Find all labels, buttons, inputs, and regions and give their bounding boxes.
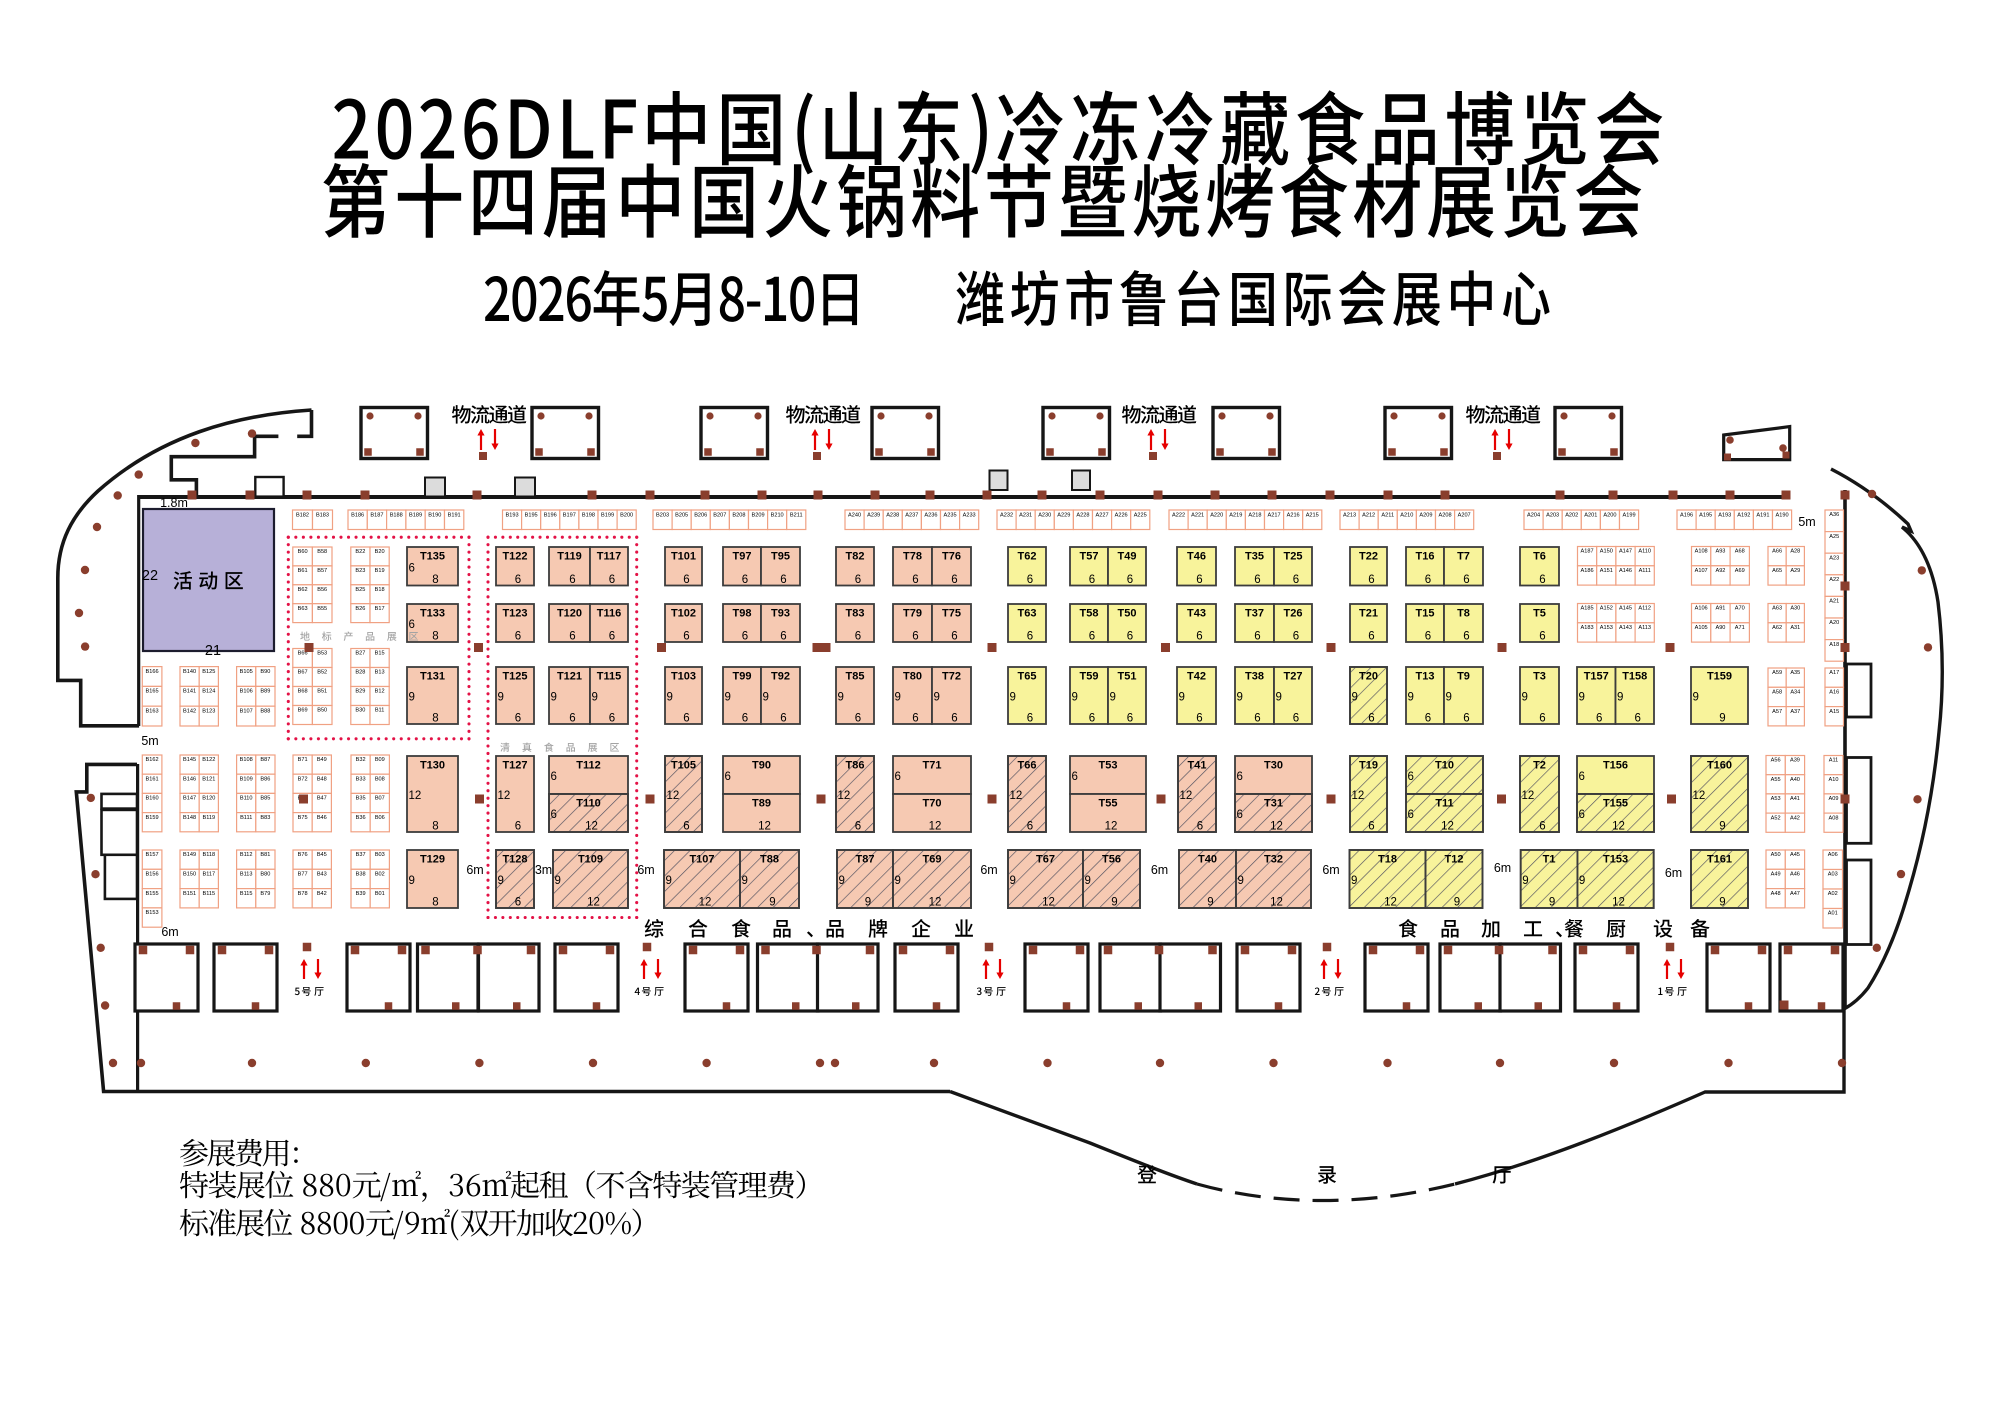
svg-text:3m: 3m: [535, 863, 552, 877]
svg-text:A216: A216: [1287, 512, 1300, 518]
svg-text:B186: B186: [351, 512, 364, 518]
svg-text:T15: T15: [1416, 608, 1435, 620]
svg-text:T123: T123: [502, 608, 527, 620]
svg-text:T122: T122: [502, 551, 527, 563]
svg-text:T43: T43: [1187, 608, 1206, 620]
svg-text:A15: A15: [1829, 709, 1839, 715]
svg-text:22: 22: [142, 568, 158, 584]
svg-text:T11: T11: [1435, 798, 1453, 810]
svg-text:B199: B199: [601, 512, 614, 518]
svg-text:T7: T7: [1457, 551, 1470, 563]
svg-text:A46: A46: [1790, 872, 1800, 878]
svg-text:T121: T121: [557, 671, 582, 683]
svg-text:B153: B153: [146, 910, 159, 916]
svg-text:A183: A183: [1581, 625, 1594, 631]
svg-text:9: 9: [1352, 692, 1358, 704]
svg-text:A237: A237: [905, 512, 918, 518]
svg-text:T3: T3: [1533, 671, 1546, 683]
svg-text:9: 9: [1207, 897, 1213, 909]
svg-text:12: 12: [1352, 790, 1365, 802]
svg-text:A152: A152: [1600, 606, 1613, 612]
svg-text:T12: T12: [1445, 854, 1464, 866]
svg-text:A231: A231: [1019, 512, 1032, 518]
svg-text:T92: T92: [771, 671, 790, 683]
svg-text:B117: B117: [202, 872, 215, 878]
svg-text:B115: B115: [202, 891, 215, 897]
svg-text:B23: B23: [355, 568, 365, 574]
svg-text:A93: A93: [1715, 549, 1725, 555]
svg-text:T67: T67: [1036, 854, 1055, 866]
svg-text:8: 8: [432, 897, 438, 909]
svg-text:9: 9: [551, 692, 557, 704]
svg-text:9: 9: [1549, 897, 1555, 909]
svg-text:B38: B38: [356, 872, 366, 878]
svg-text:B60: B60: [298, 549, 308, 555]
svg-text:A211: A211: [1381, 512, 1394, 518]
svg-text:A29: A29: [1790, 568, 1800, 574]
svg-text:6: 6: [725, 771, 731, 783]
svg-text:B61: B61: [298, 568, 308, 574]
svg-text:A187: A187: [1581, 549, 1594, 555]
svg-text:A105: A105: [1695, 625, 1708, 631]
svg-text:B112: B112: [240, 852, 253, 858]
svg-text:A192: A192: [1737, 512, 1750, 518]
svg-text:A02: A02: [1828, 891, 1838, 897]
svg-text:T83: T83: [846, 608, 865, 620]
svg-text:B191: B191: [448, 512, 461, 518]
svg-text:6: 6: [515, 713, 521, 725]
svg-text:T20: T20: [1359, 671, 1378, 683]
svg-text:T130: T130: [420, 760, 445, 772]
svg-text:B187: B187: [370, 512, 383, 518]
svg-text:6: 6: [515, 631, 521, 643]
svg-text:6: 6: [1237, 771, 1243, 783]
svg-text:6: 6: [1425, 713, 1431, 725]
svg-text:T88: T88: [760, 854, 779, 866]
svg-text:B47: B47: [317, 796, 327, 802]
svg-text:12: 12: [585, 821, 598, 833]
svg-text:6: 6: [1539, 713, 1545, 725]
svg-text:9: 9: [1237, 692, 1243, 704]
svg-text:B67: B67: [298, 670, 308, 676]
svg-text:A57: A57: [1772, 709, 1782, 715]
svg-text:12: 12: [667, 790, 680, 802]
svg-text:A236: A236: [924, 512, 937, 518]
svg-text:6: 6: [742, 574, 748, 586]
svg-text:12: 12: [587, 897, 600, 909]
svg-text:9: 9: [409, 692, 415, 704]
svg-text:A70: A70: [1735, 606, 1745, 612]
svg-text:9: 9: [742, 875, 748, 887]
svg-text:6m: 6m: [637, 863, 654, 877]
svg-text:T82: T82: [846, 551, 865, 563]
svg-text:6: 6: [409, 619, 415, 631]
svg-text:T35: T35: [1245, 551, 1264, 563]
svg-text:A222: A222: [1172, 512, 1185, 518]
svg-text:B26: B26: [355, 606, 365, 612]
svg-text:B28: B28: [355, 670, 365, 676]
svg-text:T99: T99: [733, 671, 752, 683]
svg-text:T51: T51: [1118, 671, 1137, 683]
svg-text:12: 12: [1522, 790, 1535, 802]
svg-text:A39: A39: [1790, 758, 1800, 764]
svg-text:6: 6: [912, 631, 918, 643]
svg-text:6: 6: [1539, 821, 1545, 833]
svg-text:B142: B142: [183, 708, 196, 714]
svg-text:12: 12: [1612, 897, 1625, 909]
svg-text:T135: T135: [420, 551, 445, 563]
svg-text:9: 9: [934, 692, 940, 704]
svg-text:B115: B115: [240, 891, 253, 897]
svg-text:T6: T6: [1533, 551, 1546, 563]
svg-text:B122: B122: [202, 757, 215, 763]
svg-text:9: 9: [667, 692, 673, 704]
svg-text:B85: B85: [260, 796, 270, 802]
svg-text:T65: T65: [1018, 671, 1037, 683]
svg-text:A146: A146: [1619, 568, 1632, 574]
svg-text:9: 9: [666, 875, 672, 887]
svg-text:B106: B106: [240, 689, 253, 695]
svg-text:T157: T157: [1584, 671, 1609, 683]
svg-text:B90: B90: [260, 669, 270, 675]
svg-text:B145: B145: [183, 757, 196, 763]
svg-text:T31: T31: [1264, 798, 1283, 810]
svg-text:21: 21: [205, 643, 221, 659]
svg-text:B79: B79: [260, 891, 270, 897]
svg-text:B01: B01: [375, 891, 385, 897]
svg-text:B09: B09: [375, 757, 385, 763]
svg-text:T62: T62: [1018, 551, 1037, 563]
svg-text:6: 6: [742, 631, 748, 643]
svg-text:9: 9: [555, 875, 561, 887]
svg-text:B121: B121: [202, 776, 215, 782]
svg-text:T90: T90: [752, 760, 771, 772]
svg-text:B193: B193: [506, 512, 519, 518]
svg-text:12: 12: [699, 897, 712, 909]
svg-text:B209: B209: [752, 512, 765, 518]
svg-text:A217: A217: [1268, 512, 1281, 518]
svg-text:A186: A186: [1581, 568, 1594, 574]
svg-text:6: 6: [683, 713, 689, 725]
svg-text:B160: B160: [146, 796, 159, 802]
svg-text:6: 6: [1089, 631, 1095, 643]
svg-text:T112: T112: [576, 760, 600, 772]
svg-text:9: 9: [1446, 692, 1452, 704]
svg-text:6: 6: [1254, 574, 1260, 586]
svg-text:B71: B71: [298, 757, 308, 763]
svg-text:T79: T79: [903, 608, 922, 620]
svg-text:6: 6: [551, 809, 557, 821]
svg-text:T71: T71: [923, 760, 942, 772]
svg-text:6: 6: [1463, 631, 1469, 643]
svg-text:A41: A41: [1790, 796, 1800, 802]
svg-text:B203: B203: [656, 512, 669, 518]
svg-text:6: 6: [1254, 631, 1260, 643]
svg-text:B86: B86: [260, 776, 270, 782]
svg-text:12: 12: [1612, 821, 1625, 833]
svg-text:B56: B56: [317, 587, 327, 593]
svg-text:A220: A220: [1210, 512, 1223, 518]
svg-text:B151: B151: [183, 891, 196, 897]
svg-text:5m: 5m: [141, 734, 158, 748]
svg-text:9: 9: [1111, 897, 1117, 909]
svg-text:6: 6: [609, 631, 615, 643]
svg-text:T120: T120: [557, 608, 582, 620]
svg-text:T18: T18: [1378, 854, 1397, 866]
svg-text:T105: T105: [671, 760, 696, 772]
svg-text:9: 9: [1010, 875, 1016, 887]
svg-text:A219: A219: [1229, 512, 1242, 518]
svg-text:A238: A238: [886, 512, 899, 518]
svg-text:T85: T85: [846, 671, 865, 683]
svg-text:T161: T161: [1707, 854, 1732, 866]
svg-text:A66: A66: [1772, 549, 1782, 555]
svg-text:T63: T63: [1018, 608, 1037, 620]
svg-text:12: 12: [1270, 897, 1283, 909]
svg-text:A213: A213: [1343, 512, 1356, 518]
svg-text:B69: B69: [298, 708, 308, 714]
svg-text:B37: B37: [356, 852, 366, 858]
svg-text:6: 6: [1027, 821, 1033, 833]
svg-text:A50: A50: [1771, 852, 1781, 858]
svg-text:B159: B159: [146, 815, 159, 821]
svg-text:T38: T38: [1245, 671, 1264, 683]
svg-text:9: 9: [409, 875, 415, 887]
svg-text:A45: A45: [1790, 852, 1800, 858]
svg-text:T107: T107: [689, 854, 714, 866]
svg-text:T46: T46: [1187, 551, 1206, 563]
svg-text:T1: T1: [1543, 854, 1556, 866]
svg-text:B87: B87: [260, 757, 270, 763]
svg-text:6: 6: [1368, 713, 1374, 725]
svg-text:A23: A23: [1829, 555, 1839, 561]
svg-text:6: 6: [1579, 809, 1585, 821]
svg-text:A58: A58: [1772, 690, 1782, 696]
svg-text:T40: T40: [1198, 854, 1217, 866]
svg-text:T119: T119: [557, 551, 581, 563]
svg-text:9: 9: [1693, 692, 1699, 704]
svg-text:B80: B80: [260, 872, 270, 878]
svg-text:B108: B108: [240, 757, 253, 763]
svg-text:B198: B198: [582, 512, 595, 518]
svg-text:A49: A49: [1771, 872, 1781, 878]
svg-text:T95: T95: [771, 551, 790, 563]
svg-text:B42: B42: [317, 891, 327, 897]
svg-text:9: 9: [1351, 875, 1357, 887]
svg-text:12: 12: [1441, 821, 1454, 833]
svg-text:A212: A212: [1362, 512, 1375, 518]
svg-text:A227: A227: [1096, 512, 1109, 518]
svg-text:B53: B53: [317, 651, 327, 657]
svg-text:T80: T80: [903, 671, 922, 683]
svg-text:6: 6: [1539, 631, 1545, 643]
svg-text:9: 9: [838, 692, 844, 704]
svg-text:12: 12: [1010, 790, 1023, 802]
svg-text:B76: B76: [298, 852, 308, 858]
svg-text:A06: A06: [1828, 852, 1838, 858]
svg-text:T70: T70: [923, 798, 942, 810]
svg-text:B49: B49: [317, 757, 327, 763]
svg-text:A232: A232: [1000, 512, 1013, 518]
svg-text:T89: T89: [752, 798, 771, 810]
svg-text:T131: T131: [420, 671, 445, 683]
svg-text:B206: B206: [694, 512, 707, 518]
svg-text:T127: T127: [502, 760, 527, 772]
svg-text:6: 6: [780, 574, 786, 586]
svg-text:T22: T22: [1359, 551, 1378, 563]
svg-text:6: 6: [569, 574, 575, 586]
svg-text:B200: B200: [620, 512, 633, 518]
svg-text:B110: B110: [240, 796, 253, 802]
svg-text:T102: T102: [671, 608, 696, 620]
svg-text:B155: B155: [146, 891, 159, 897]
svg-text:9: 9: [839, 875, 845, 887]
svg-text:A221: A221: [1191, 512, 1204, 518]
svg-text:A145: A145: [1619, 606, 1632, 612]
svg-text:6: 6: [855, 574, 861, 586]
svg-text:A203: A203: [1546, 512, 1559, 518]
svg-text:A190: A190: [1776, 512, 1789, 518]
svg-text:A150: A150: [1600, 549, 1613, 555]
svg-text:9: 9: [1719, 821, 1725, 833]
svg-text:6: 6: [551, 771, 557, 783]
svg-text:A202: A202: [1565, 512, 1578, 518]
svg-text:12: 12: [1105, 821, 1118, 833]
svg-text:B88: B88: [260, 708, 270, 714]
svg-text:9: 9: [865, 897, 871, 909]
svg-text:T55: T55: [1099, 798, 1118, 810]
svg-text:B29: B29: [355, 689, 365, 695]
svg-text:B210: B210: [771, 512, 784, 518]
svg-text:A91: A91: [1715, 606, 1725, 612]
svg-text:T76: T76: [942, 551, 961, 563]
svg-text:A229: A229: [1057, 512, 1070, 518]
svg-text:6: 6: [1368, 631, 1374, 643]
svg-text:T10: T10: [1435, 760, 1454, 772]
svg-text:A215: A215: [1306, 512, 1319, 518]
svg-text:B32: B32: [356, 757, 366, 763]
svg-text:B06: B06: [375, 815, 385, 821]
svg-text:T115: T115: [597, 671, 621, 683]
svg-text:A225: A225: [1134, 512, 1147, 518]
svg-text:A10: A10: [1829, 777, 1839, 783]
svg-text:B48: B48: [317, 776, 327, 782]
svg-text:A56: A56: [1771, 758, 1781, 764]
svg-text:B08: B08: [375, 776, 385, 782]
svg-text:T159: T159: [1707, 671, 1732, 683]
svg-text:8: 8: [432, 631, 438, 643]
svg-text:6m: 6m: [1665, 866, 1682, 880]
svg-text:6m: 6m: [1151, 863, 1168, 877]
svg-text:A210: A210: [1400, 512, 1413, 518]
svg-text:6: 6: [1425, 631, 1431, 643]
svg-text:A151: A151: [1600, 568, 1613, 574]
svg-text:12: 12: [758, 821, 771, 833]
svg-text:B39: B39: [356, 891, 366, 897]
svg-text:8: 8: [432, 821, 438, 833]
svg-text:A90: A90: [1715, 625, 1725, 631]
svg-text:9: 9: [1010, 692, 1016, 704]
svg-text:B55: B55: [317, 606, 327, 612]
svg-text:B196: B196: [544, 512, 557, 518]
svg-text:A218: A218: [1248, 512, 1261, 518]
svg-text:T156: T156: [1603, 760, 1628, 772]
svg-text:9: 9: [1276, 692, 1282, 704]
svg-text:B190: B190: [428, 512, 441, 518]
svg-text:A111: A111: [1639, 568, 1651, 574]
svg-text:6: 6: [1463, 574, 1469, 586]
svg-text:T160: T160: [1707, 760, 1732, 772]
svg-text:9: 9: [592, 692, 598, 704]
svg-text:B118: B118: [202, 852, 215, 858]
svg-text:6: 6: [742, 713, 748, 725]
svg-text:9: 9: [1719, 897, 1725, 909]
svg-text:A65: A65: [1772, 568, 1782, 574]
svg-text:T69: T69: [923, 854, 942, 866]
svg-text:B20: B20: [375, 549, 385, 555]
svg-text:A28: A28: [1790, 549, 1800, 555]
svg-text:T86: T86: [846, 760, 865, 772]
svg-text:6: 6: [1408, 809, 1414, 821]
svg-text:B46: B46: [317, 815, 327, 821]
svg-text:9: 9: [498, 875, 504, 887]
svg-text:A20: A20: [1829, 620, 1839, 626]
svg-text:A40: A40: [1790, 777, 1800, 783]
svg-text:T101: T101: [671, 551, 696, 563]
svg-text:A25: A25: [1829, 534, 1839, 540]
svg-text:6: 6: [855, 631, 861, 643]
svg-text:12: 12: [1042, 897, 1055, 909]
svg-text:B105: B105: [240, 669, 253, 675]
svg-text:T158: T158: [1622, 671, 1647, 683]
svg-text:6: 6: [1089, 574, 1095, 586]
svg-text:9: 9: [1579, 692, 1585, 704]
svg-text:6: 6: [1196, 574, 1202, 586]
svg-text:A16: A16: [1829, 690, 1839, 696]
svg-text:9: 9: [895, 875, 901, 887]
svg-text:T49: T49: [1118, 551, 1137, 563]
svg-text:6: 6: [1539, 574, 1545, 586]
svg-text:B11: B11: [375, 708, 385, 714]
svg-text:8: 8: [432, 713, 438, 725]
svg-text:6: 6: [912, 713, 918, 725]
svg-text:6: 6: [569, 631, 575, 643]
svg-text:6: 6: [1072, 771, 1078, 783]
svg-text:T16: T16: [1416, 551, 1435, 563]
svg-text:A201: A201: [1584, 512, 1597, 518]
svg-text:B33: B33: [356, 776, 366, 782]
svg-text:T109: T109: [578, 854, 603, 866]
svg-text:T153: T153: [1603, 854, 1628, 866]
svg-text:B111: B111: [240, 815, 252, 821]
svg-text:6: 6: [780, 713, 786, 725]
svg-text:A107: A107: [1695, 568, 1708, 574]
svg-text:12: 12: [1270, 821, 1283, 833]
svg-text:A30: A30: [1790, 606, 1800, 612]
svg-text:A233: A233: [963, 512, 976, 518]
svg-text:6: 6: [1579, 771, 1585, 783]
svg-text:T57: T57: [1080, 551, 1099, 563]
svg-text:6: 6: [1197, 821, 1203, 833]
svg-text:A153: A153: [1600, 625, 1613, 631]
svg-text:T53: T53: [1099, 760, 1118, 772]
svg-text:A11: A11: [1829, 758, 1839, 764]
svg-text:A240: A240: [848, 512, 861, 518]
svg-text:T87: T87: [856, 854, 875, 866]
svg-text:12: 12: [929, 897, 942, 909]
svg-text:A71: A71: [1735, 625, 1745, 631]
svg-text:A199: A199: [1623, 512, 1636, 518]
